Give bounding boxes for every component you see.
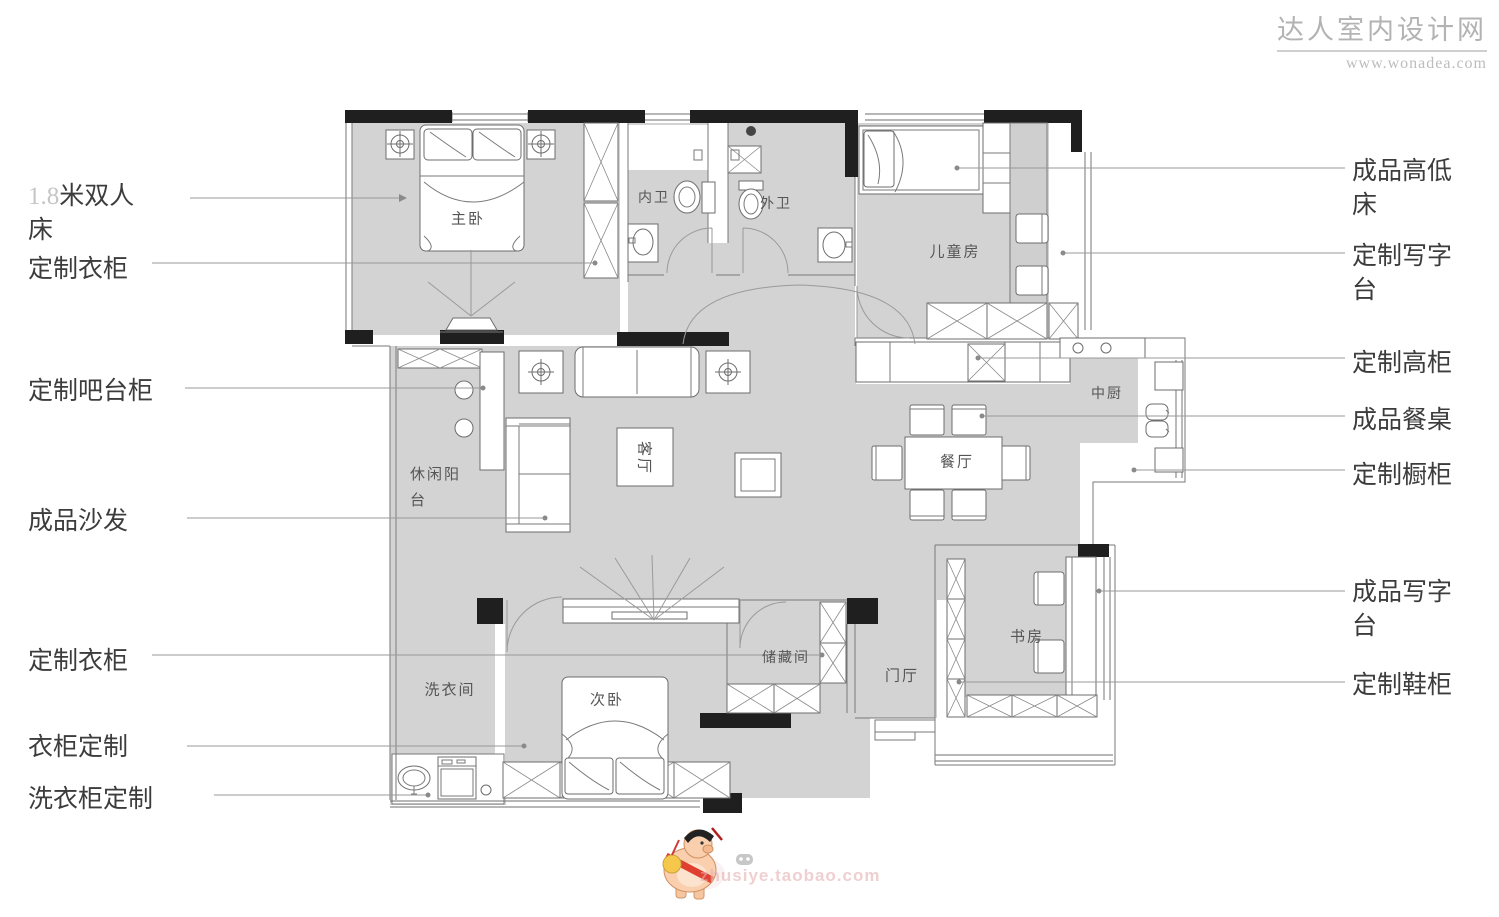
outer-sink <box>818 228 852 262</box>
annotation-custom-desk: 定制写字台 <box>1352 240 1464 308</box>
annotation-custom-wardrobe-1: 定制衣柜 <box>28 253 198 287</box>
room-label-living-room: 客厅 <box>635 441 656 475</box>
kids-bed <box>859 126 983 194</box>
annotation-laundry-cabinet-custom: 洗衣柜定制 <box>28 783 198 817</box>
room-label-kitchen: 中厨 <box>1091 383 1123 403</box>
annotation-ready-dining-table: 成品餐桌 <box>1352 404 1482 438</box>
room-label-dining-room: 餐厅 <box>940 451 974 472</box>
floor-plan-page: 主卧 内卫 外卫 儿童房 中厨 餐厅 客厅 休闲阳台 洗衣间 次卧 储藏间 门厅… <box>0 0 1499 917</box>
annotation-bunk-bed: 成品高低床 <box>1352 155 1464 223</box>
sideboard-cabinets <box>856 342 1070 382</box>
inner-toilet <box>674 181 715 213</box>
washing-machine <box>438 757 476 799</box>
annotation-custom-kitchen-cabinet: 定制橱柜 <box>1352 459 1482 493</box>
room-label-outer-bathroom: 外卫 <box>760 193 792 213</box>
shop-watermark: zhusiye.taobao.com <box>700 866 920 886</box>
side-table <box>735 453 781 497</box>
annotation-custom-shoe-cabinet: 定制鞋柜 <box>1352 669 1482 703</box>
room-label-study: 书房 <box>1010 626 1044 647</box>
site-url: www.wonadea.com <box>1277 55 1487 73</box>
annotation-custom-tall-cabinet: 定制高柜 <box>1352 347 1482 381</box>
annotation-ready-sofa: 成品沙发 <box>28 505 198 539</box>
bar-counter <box>480 352 504 470</box>
inner-sink <box>628 224 658 262</box>
corner-sofa <box>506 418 570 532</box>
room-label-laundry: 洗衣间 <box>424 679 475 700</box>
annotation-double-bed: 1.8米双人床 <box>28 180 154 248</box>
room-label-inner-bathroom: 内卫 <box>638 187 670 207</box>
pig-mascot-watermark <box>663 828 753 899</box>
sofa <box>575 347 699 397</box>
annotation-custom-bar-cabinet: 定制吧台柜 <box>28 375 198 409</box>
room-label-storage: 储藏间 <box>762 647 810 667</box>
kids-wardrobe <box>927 303 1078 339</box>
annotation-wardrobe-custom: 衣柜定制 <box>28 731 198 765</box>
master-bed <box>420 125 524 251</box>
room-label-kids-room: 儿童房 <box>929 241 980 262</box>
annotation-ready-desk: 成品写字台 <box>1352 576 1464 644</box>
master-wardrobe <box>584 123 618 278</box>
kitchen-sink <box>1146 404 1169 437</box>
annotation-size-prefix: 1.8 <box>28 183 59 210</box>
annotation-custom-wardrobe-2: 定制衣柜 <box>28 645 198 679</box>
site-watermark: 达人室内设计网 www.wonadea.com <box>1277 8 1487 73</box>
room-label-master-bedroom: 主卧 <box>451 208 485 229</box>
room-label-second-bedroom: 次卧 <box>590 689 624 710</box>
floor-plan-drawing <box>0 0 1499 917</box>
study-desk <box>1066 557 1096 699</box>
site-name: 达人室内设计网 <box>1277 8 1487 52</box>
room-label-foyer: 门厅 <box>885 665 919 686</box>
room-label-balcony: 休闲阳台 <box>410 462 462 514</box>
